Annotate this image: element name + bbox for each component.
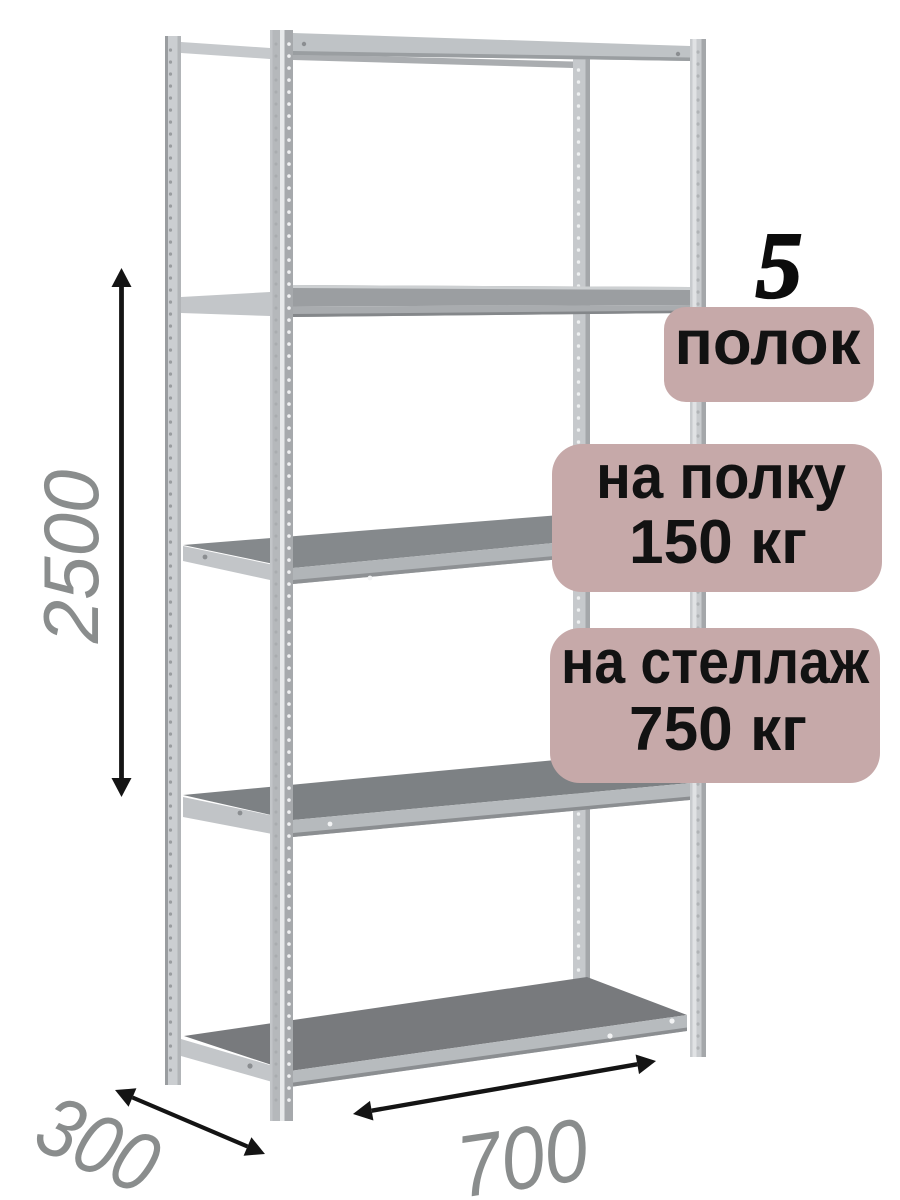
svg-text:700: 700 [451,1100,595,1200]
svg-text:750 кг: 750 кг [629,695,807,764]
svg-text:5: 5 [756,214,803,318]
svg-text:150 кг: 150 кг [629,508,807,577]
svg-text:300: 300 [23,1076,173,1200]
svg-text:полок: полок [675,308,861,378]
svg-text:на полку: на полку [596,443,846,512]
svg-text:на стеллаж: на стеллаж [561,628,870,697]
svg-text:2500: 2500 [27,470,115,645]
